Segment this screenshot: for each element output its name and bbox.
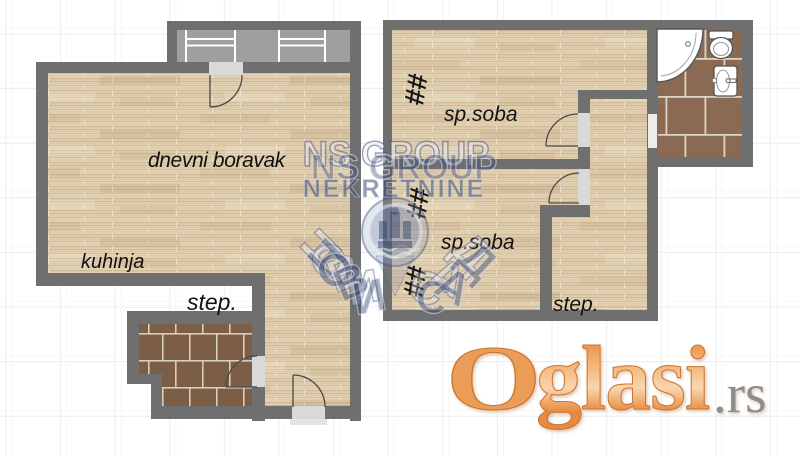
- svg-text:step.: step.: [553, 293, 599, 316]
- svg-text:glasi: glasi: [536, 327, 710, 429]
- svg-text:kuhinja: kuhinja: [81, 251, 144, 273]
- svg-text:step.: step.: [187, 289, 237, 315]
- svg-text:.rs: .rs: [713, 363, 766, 424]
- svg-text:dnevni boravak: dnevni boravak: [148, 149, 287, 172]
- svg-text:sp.soba: sp.soba: [444, 103, 518, 126]
- svg-text:##: ##: [398, 71, 434, 107]
- svg-text:O: O: [446, 328, 541, 429]
